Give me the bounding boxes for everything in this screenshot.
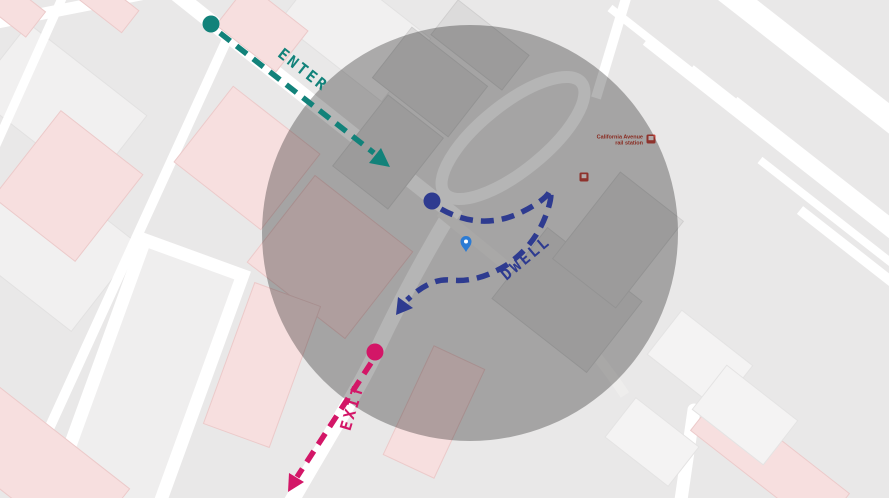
exit-start-dot xyxy=(367,344,384,361)
enter-start-dot xyxy=(203,16,220,33)
map-canvas[interactable]: California Avenue rail station ENTER DWE… xyxy=(0,0,889,498)
dwell-start-dot xyxy=(424,193,441,210)
